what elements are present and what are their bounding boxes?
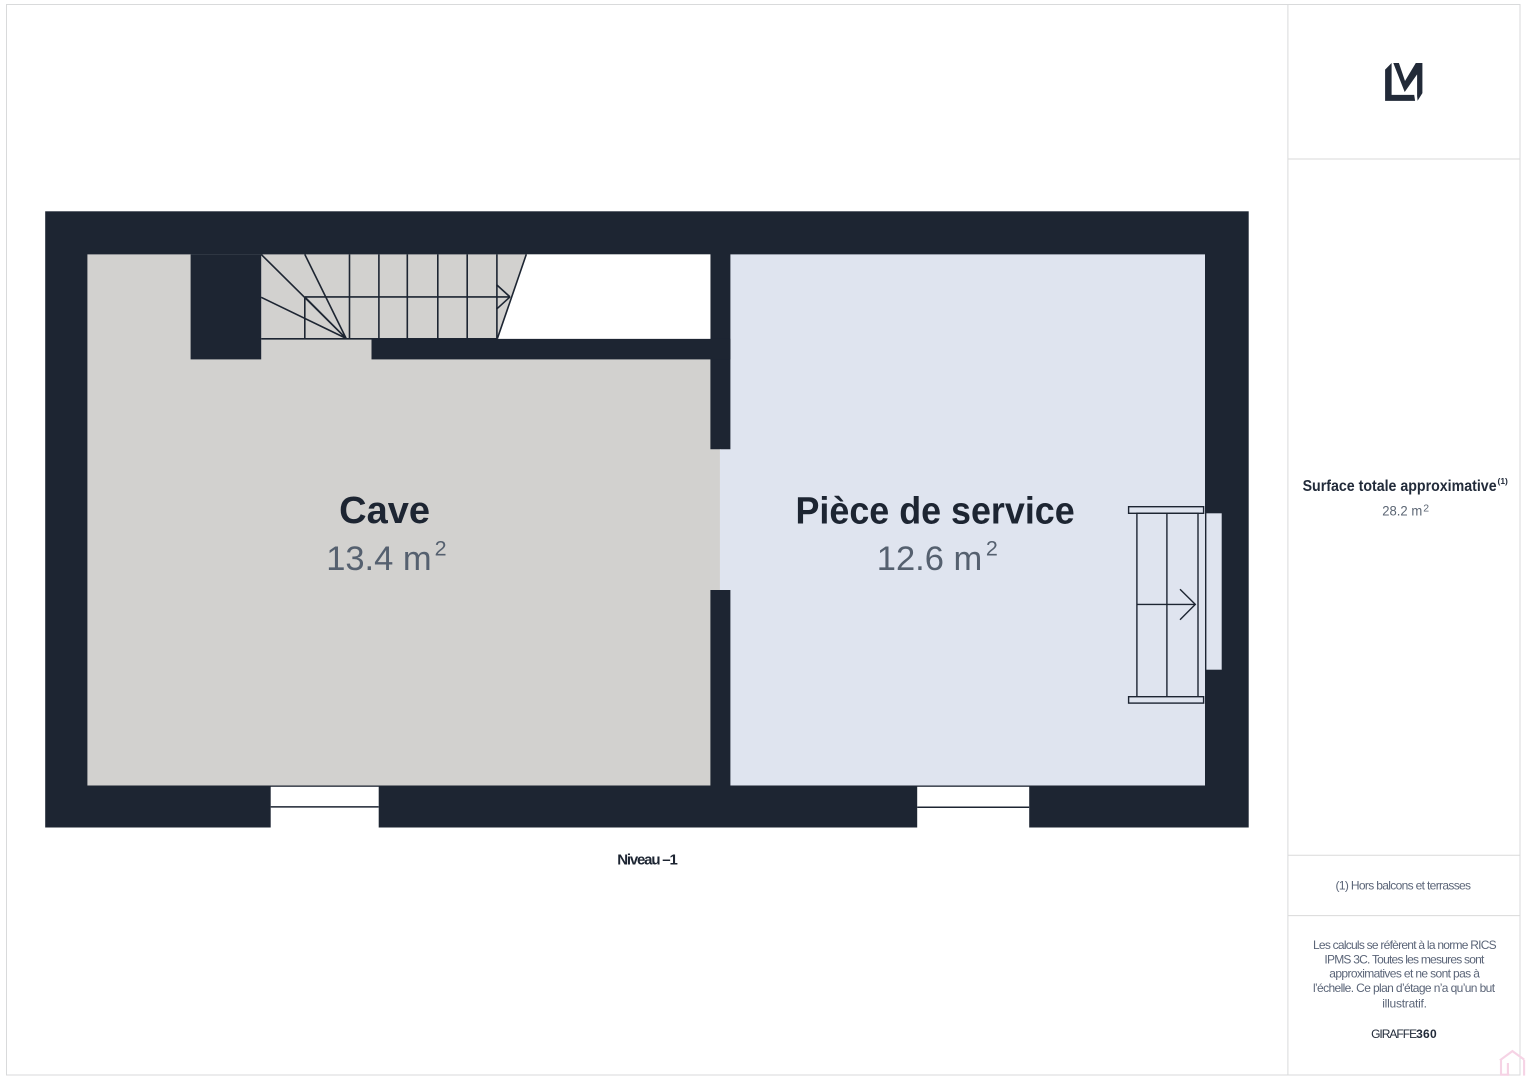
svg-text:2: 2 xyxy=(435,537,447,561)
svg-text:l’échelle. Ce plan d’étage n’a: l’échelle. Ce plan d’étage n’a qu’un but xyxy=(1313,981,1496,995)
svg-text:illustratif.: illustratif. xyxy=(1382,997,1427,1011)
svg-text:GIRAFFE360: GIRAFFE360 xyxy=(1371,1027,1437,1041)
svg-text:Les calculs se réfèrent à la n: Les calculs se réfèrent à la norme RICS xyxy=(1313,938,1497,952)
svg-text:Pièce de service: Pièce de service xyxy=(796,491,1075,533)
svg-text:Cave: Cave xyxy=(339,490,430,532)
svg-text:13.4 m: 13.4 m xyxy=(326,540,431,578)
svg-text:Surface totale approximative: Surface totale approximative xyxy=(1303,478,1497,495)
svg-text:(1) Hors balcons et terrasses: (1) Hors balcons et terrasses xyxy=(1336,878,1472,892)
svg-text:IPMS 3C. Toutes les mesures so: IPMS 3C. Toutes les mesures sont xyxy=(1324,952,1485,966)
svg-text:2: 2 xyxy=(1423,503,1429,515)
svg-text:28.2 m: 28.2 m xyxy=(1382,503,1422,518)
svg-text:Niveau –1: Niveau –1 xyxy=(617,851,678,868)
svg-text:(1): (1) xyxy=(1498,476,1509,486)
svg-text:2: 2 xyxy=(986,537,998,561)
svg-text:12.6 m: 12.6 m xyxy=(877,540,982,578)
svg-text:approximatives et ne sont pas: approximatives et ne sont pas à xyxy=(1329,967,1480,981)
